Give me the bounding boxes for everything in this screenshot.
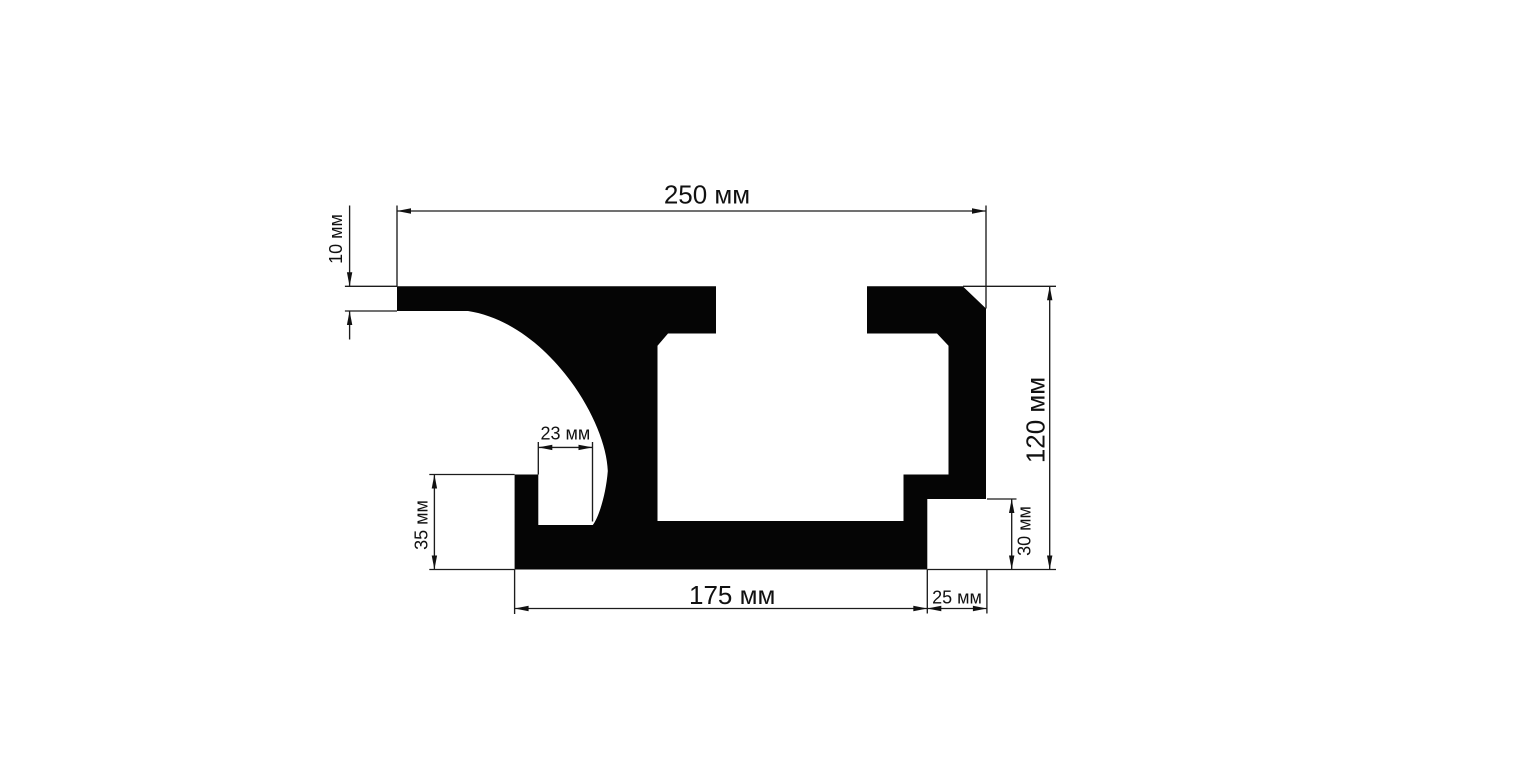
svg-text:175 мм: 175 мм [689, 580, 775, 610]
svg-text:25 мм: 25 мм [932, 588, 982, 608]
svg-text:35 мм: 35 мм [412, 500, 432, 550]
svg-text:10 мм: 10 мм [326, 214, 346, 264]
svg-text:30 мм: 30 мм [1015, 506, 1035, 556]
svg-text:250 мм: 250 мм [664, 180, 750, 210]
svg-text:120 мм: 120 мм [1021, 377, 1051, 463]
svg-text:23 мм: 23 мм [541, 424, 591, 444]
